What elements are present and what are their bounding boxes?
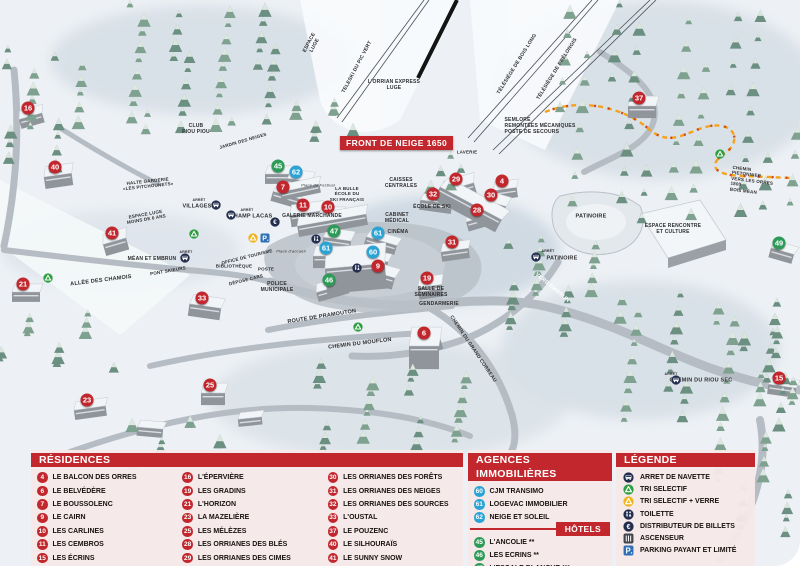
residence-number-badge: 19 (182, 486, 193, 497)
residence-item: 29 LES ORRIANES DES CIMES (176, 551, 317, 564)
residence-number-badge: 11 (37, 539, 48, 550)
resort-map-canvas: € P (0, 0, 800, 566)
agencies-list: 60 CJM TRANSIMO 61 LOGEVAC IMMOBILIER 62… (468, 483, 612, 524)
legende-label: TRI SELECTIF + VERRE (640, 498, 719, 505)
parking-icon (623, 545, 634, 556)
residence-number-badge: 21 (182, 499, 193, 510)
agency-number-badge: 61 (474, 499, 485, 510)
residence-number-badge: 30 (328, 472, 339, 483)
residence-number-badge: 37 (328, 526, 339, 537)
agency-name: NEIGE ET SOLEIL (490, 514, 550, 521)
elevator-icon (623, 533, 634, 544)
residence-item: 16 L'ÉPERVIÈRE (176, 471, 317, 484)
residence-item: 25 LES MÉLÈZES (176, 525, 317, 538)
recycle-green-icon (623, 484, 634, 495)
legende-panel: LÉGENDE ARRET DE NAVETTE TRI SELECTIF TR… (616, 450, 755, 566)
agency-name: CJM TRANSIMO (490, 488, 544, 495)
agency-item: 61 LOGEVAC IMMOBILIER (468, 498, 612, 511)
residence-number-badge: 9 (37, 513, 48, 524)
residence-name: LES ORRIANES DES NEIGES (343, 488, 440, 495)
residence-number-badge: 7 (37, 499, 48, 510)
residence-name: LES CEMBROS (53, 541, 104, 548)
residence-number-badge: 25 (182, 526, 193, 537)
hotels-list: 45 L'ANCOLIE ** 46 LES ECRINS ** 47 L'ES… (468, 534, 612, 566)
residence-number-badge: 29 (182, 553, 193, 564)
residence-name: LE SILHOURAÏS (343, 541, 397, 548)
residence-name: LES ORRIANES DES CIMES (198, 555, 291, 562)
residence-number-badge: 40 (328, 539, 339, 550)
residences-list: 4 LE BALCON DES ORRES 6 LE BELVÉDÈRE 7 L… (31, 469, 463, 566)
residence-name: LE POUZENC (343, 528, 388, 535)
residence-item: 11 LES CEMBROS (31, 538, 172, 551)
residence-name: LES MÉLÈZES (198, 528, 247, 535)
residence-item: 6 LE BELVÉDÈRE (31, 484, 172, 497)
residence-item: 30 LES ORRIANES DES FORÊTS (322, 471, 463, 484)
residence-item: 19 LES GRADINS (176, 484, 317, 497)
residence-item: 41 LE SUNNY SNOW (322, 551, 463, 564)
hotel-name: LES ECRINS ** (490, 552, 539, 559)
legende-label: PARKING PAYANT ET LIMITÉ (640, 547, 736, 554)
residence-number-badge: 32 (328, 499, 339, 510)
residence-number-badge: 4 (37, 472, 48, 483)
residence-name: LE SUNNY SNOW (343, 555, 402, 562)
legende-item: ARRET DE NAVETTE (616, 471, 755, 483)
legende-item: TOILETTE (616, 508, 755, 520)
residence-name: LE BELVÉDÈRE (53, 488, 106, 495)
residences-header: RÉSIDENCES (31, 453, 463, 467)
agency-item: 60 CJM TRANSIMO (468, 485, 612, 498)
residence-item: 33 L'OUSTAL (322, 511, 463, 524)
legende-item: DISTRIBUTEUR DE BILLETS (616, 520, 755, 532)
legende-item: PARKING PAYANT ET LIMITÉ (616, 545, 755, 557)
hotels-divider: HÔTELS (470, 528, 610, 530)
euro-icon (623, 521, 634, 532)
legende-list: ARRET DE NAVETTE TRI SELECTIF TRI SELECT… (616, 469, 755, 557)
legende-label: DISTRIBUTEUR DE BILLETS (640, 523, 735, 530)
residence-number-badge: 28 (182, 539, 193, 550)
residence-name: LES ORRIANES DES SOURCES (343, 501, 448, 508)
residence-name: L'HORIZON (198, 501, 236, 508)
hotel-name: L'ANCOLIE ** (490, 539, 535, 546)
legende-header: LÉGENDE (616, 453, 755, 467)
agencies-header: AGENCES IMMOBILIÈRES (468, 453, 612, 481)
residence-item: 40 LE SILHOURAÏS (322, 538, 463, 551)
residence-number-badge: 41 (328, 553, 339, 564)
residence-number-badge: 23 (182, 513, 193, 524)
residence-number-badge: 16 (182, 472, 193, 483)
residence-name: LES GRADINS (198, 488, 246, 495)
residence-number-badge: 6 (37, 486, 48, 497)
residence-number-badge: 33 (328, 513, 339, 524)
legende-item: TRI SELECTIF (616, 483, 755, 495)
residence-item: 10 LES CARLINES (31, 525, 172, 538)
residence-number-badge: 31 (328, 486, 339, 497)
residence-name: LE BALCON DES ORRES (53, 474, 137, 481)
hotel-item: 47 L'ESCALE BLANCHE *** (468, 562, 612, 566)
agency-name: LOGEVAC IMMOBILIER (490, 501, 568, 508)
hotel-number-badge: 46 (474, 550, 485, 561)
residence-name: L'OUSTAL (343, 514, 377, 521)
legende-label: TOILETTE (640, 511, 674, 518)
agency-number-badge: 62 (474, 512, 485, 523)
residence-item: 7 LE BOUSSOLENC (31, 498, 172, 511)
residence-item: 32 LES ORRIANES DES SOURCES (322, 498, 463, 511)
hotels-header: HÔTELS (556, 522, 610, 536)
residence-item: 37 LE POUZENC (322, 525, 463, 538)
residence-name: LES CARLINES (53, 528, 104, 535)
legende-item: ASCENSEUR (616, 532, 755, 544)
legende-label: TRI SELECTIF (640, 486, 687, 493)
residence-name: LE CAIRN (53, 514, 86, 521)
bus-icon (623, 472, 634, 483)
hotel-item: 45 L'ANCOLIE ** (468, 536, 612, 549)
agency-number-badge: 60 (474, 486, 485, 497)
legende-item: TRI SELECTIF + VERRE (616, 496, 755, 508)
legende-label: ARRET DE NAVETTE (640, 474, 710, 481)
residences-panel: RÉSIDENCES 4 LE BALCON DES ORRES 6 LE BE… (31, 450, 463, 566)
hotel-item: 46 LES ECRINS ** (468, 549, 612, 562)
wc-icon (623, 509, 634, 520)
residence-item: 21 L'HORIZON (176, 498, 317, 511)
residence-name: LES ORRIANES DES FORÊTS (343, 474, 442, 481)
residence-number-badge: 15 (37, 553, 48, 564)
residence-item: 15 LES ÉCRINS (31, 551, 172, 564)
hotel-number-badge: 45 (474, 537, 485, 548)
residence-item: 31 LES ORRIANES DES NEIGES (322, 484, 463, 497)
legende-label: ASCENSEUR (640, 535, 684, 542)
residence-name: L'ÉPERVIÈRE (198, 474, 244, 481)
residence-name: LES ORRIANES DES BLÉS (198, 541, 287, 548)
residence-item: 28 LES ORRIANES DES BLÉS (176, 538, 317, 551)
residence-item: 9 LE CAIRN (31, 511, 172, 524)
residence-item: 4 LE BALCON DES ORRES (31, 471, 172, 484)
front-de-neige-banner: FRONT DE NEIGE 1650 (340, 136, 453, 150)
recycle-yellow-icon (623, 496, 634, 507)
residence-item: 23 LA MAZELIÈRE (176, 511, 317, 524)
residence-name: LES ÉCRINS (53, 555, 95, 562)
residence-name: LA MAZELIÈRE (198, 514, 249, 521)
residence-name: LE BOUSSOLENC (53, 501, 113, 508)
agencies-panel: AGENCES IMMOBILIÈRES 60 CJM TRANSIMO 61 … (468, 450, 612, 566)
residence-number-badge: 10 (37, 526, 48, 537)
